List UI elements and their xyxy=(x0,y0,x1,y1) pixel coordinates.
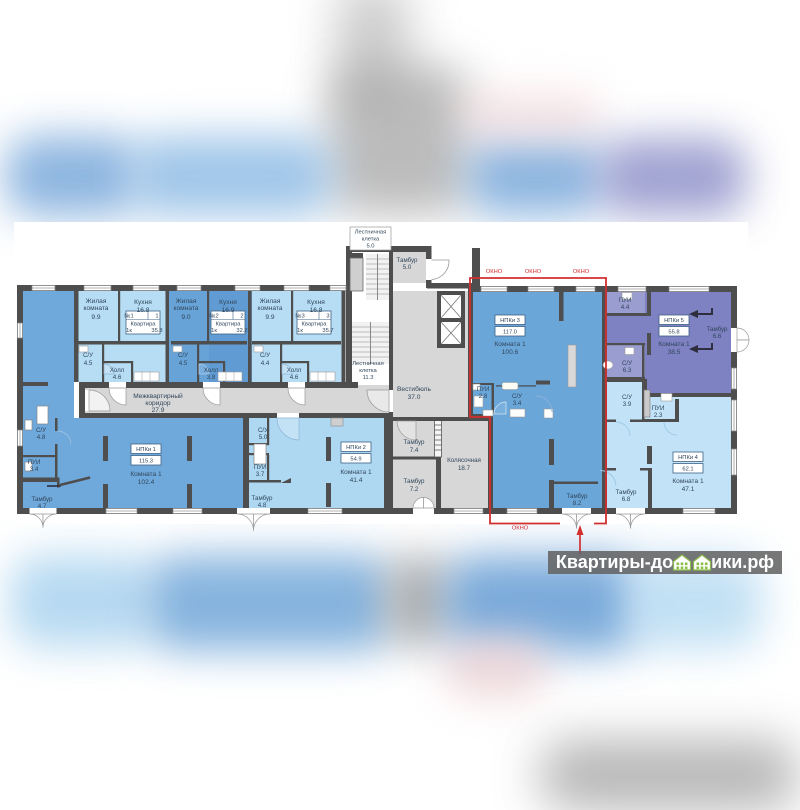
svg-text:Комната 1: Комната 1 xyxy=(658,341,690,348)
svg-text:32.2: 32.2 xyxy=(236,328,247,334)
svg-text:Комната 1: Комната 1 xyxy=(672,478,704,485)
svg-text:Межквартирный: Межквартирный xyxy=(133,392,183,400)
svg-text:ОКНО: ОКНО xyxy=(486,269,503,275)
svg-text:27.9: 27.9 xyxy=(152,407,165,414)
svg-text:2.8: 2.8 xyxy=(479,393,488,400)
svg-text:3.9: 3.9 xyxy=(623,401,632,408)
svg-text:55.8: 55.8 xyxy=(668,330,679,336)
svg-text:16.8: 16.8 xyxy=(310,307,323,314)
svg-text:Лестничная: Лестничная xyxy=(355,230,387,236)
svg-text:НПКи 1: НПКи 1 xyxy=(136,447,156,453)
svg-text:37.0: 37.0 xyxy=(408,394,421,401)
svg-text:С/У: С/У xyxy=(260,352,270,359)
svg-text:6.3: 6.3 xyxy=(623,367,632,374)
svg-text:3: 3 xyxy=(326,314,329,320)
svg-text:НПКи 5: НПКи 5 xyxy=(664,318,684,324)
svg-text:6.8: 6.8 xyxy=(622,496,631,503)
svg-text:16.8: 16.8 xyxy=(137,307,150,314)
svg-text:комната: комната xyxy=(258,305,283,312)
svg-text:Лестничная: Лестничная xyxy=(352,361,384,367)
svg-text:3.7: 3.7 xyxy=(256,471,265,478)
svg-text:ПУИ: ПУИ xyxy=(477,386,490,393)
svg-text:С/У: С/У xyxy=(512,393,522,400)
svg-text:коридор: коридор xyxy=(145,400,170,407)
svg-text:100.6: 100.6 xyxy=(502,349,519,356)
svg-text:62.1: 62.1 xyxy=(682,467,693,473)
svg-text:47.1: 47.1 xyxy=(682,486,695,493)
svg-text:Квартира: Квартира xyxy=(215,322,241,328)
svg-text:1к: 1к xyxy=(211,328,217,334)
svg-text:Вестибюль: Вестибюль xyxy=(397,385,431,393)
svg-text:2: 2 xyxy=(240,314,243,320)
svg-text:ПУИ: ПУИ xyxy=(254,464,267,471)
svg-text:4.6: 4.6 xyxy=(290,374,299,381)
svg-text:Тамбур: Тамбур xyxy=(404,478,426,485)
svg-text:5.0: 5.0 xyxy=(403,264,412,271)
svg-text:Тамбур: Тамбур xyxy=(252,495,274,502)
svg-text:5.0: 5.0 xyxy=(366,244,374,250)
svg-text:54.9: 54.9 xyxy=(350,457,361,463)
svg-text:Жилая: Жилая xyxy=(260,298,281,305)
svg-text:Тамбур: Тамбур xyxy=(616,489,638,496)
svg-text:№2: №2 xyxy=(209,314,218,320)
svg-text:ОКНО: ОКНО xyxy=(525,269,542,275)
svg-text:комната: комната xyxy=(174,305,199,312)
svg-text:Кухня: Кухня xyxy=(134,299,152,306)
svg-text:С/У: С/У xyxy=(178,352,188,359)
svg-text:1: 1 xyxy=(155,314,158,320)
svg-text:4.4: 4.4 xyxy=(261,360,270,367)
svg-text:35.7: 35.7 xyxy=(322,328,333,334)
svg-text:41.4: 41.4 xyxy=(350,477,363,484)
svg-text:клетка: клетка xyxy=(362,237,380,243)
svg-text:С/У: С/У xyxy=(622,360,632,367)
svg-text:НПКи 4: НПКи 4 xyxy=(678,455,699,461)
svg-text:Кухня: Кухня xyxy=(219,299,237,306)
svg-text:4.6: 4.6 xyxy=(113,374,122,381)
svg-text:НПКи 3: НПКи 3 xyxy=(500,318,520,324)
svg-text:102.4: 102.4 xyxy=(138,479,155,486)
svg-text:35.8: 35.8 xyxy=(151,328,162,334)
svg-text:1к: 1к xyxy=(297,328,303,334)
svg-text:4.5: 4.5 xyxy=(179,360,188,367)
svg-text:117.0: 117.0 xyxy=(503,330,517,336)
svg-text:2.3: 2.3 xyxy=(654,412,663,419)
svg-text:9.9: 9.9 xyxy=(265,314,274,321)
svg-text:Квартира: Квартира xyxy=(130,322,156,328)
svg-text:4.8: 4.8 xyxy=(37,434,46,441)
svg-text:Жилая: Жилая xyxy=(176,298,197,305)
svg-text:С/У: С/У xyxy=(622,394,632,401)
svg-text:4.4: 4.4 xyxy=(621,304,630,311)
svg-text:3.4: 3.4 xyxy=(30,466,39,473)
svg-text:ОКНО: ОКНО xyxy=(512,526,529,532)
svg-text:Холл: Холл xyxy=(204,367,219,374)
svg-text:4.5: 4.5 xyxy=(84,360,93,367)
svg-text:Холл: Холл xyxy=(110,367,125,374)
svg-text:5.0: 5.0 xyxy=(259,434,268,441)
svg-text:3.8: 3.8 xyxy=(207,374,216,381)
svg-text:115.3: 115.3 xyxy=(139,459,153,465)
svg-text:Квартира: Квартира xyxy=(301,322,327,328)
svg-text:Комната 1: Комната 1 xyxy=(494,341,526,348)
svg-text:С/У: С/У xyxy=(83,352,93,359)
svg-text:3.4: 3.4 xyxy=(513,400,522,407)
svg-text:Кухня: Кухня xyxy=(307,299,325,306)
svg-text:№1: №1 xyxy=(124,314,133,320)
svg-text:16.9: 16.9 xyxy=(222,307,235,314)
svg-text:9.9: 9.9 xyxy=(91,314,100,321)
svg-text:6.6: 6.6 xyxy=(713,333,722,340)
svg-text:Тамбур: Тамбур xyxy=(567,493,589,500)
svg-text:Холл: Холл xyxy=(287,367,302,374)
svg-text:4.8: 4.8 xyxy=(258,502,267,509)
svg-text:18.7: 18.7 xyxy=(458,465,471,472)
svg-text:ПУИ: ПУИ xyxy=(619,297,632,304)
svg-text:4.7: 4.7 xyxy=(38,503,47,510)
svg-text:клетка: клетка xyxy=(359,368,377,374)
svg-text:ОКНО: ОКНО xyxy=(573,269,590,275)
svg-text:С/У: С/У xyxy=(258,427,268,434)
svg-text:1к: 1к xyxy=(126,328,132,334)
svg-text:Жилая: Жилая xyxy=(86,298,107,305)
svg-text:Комната 1: Комната 1 xyxy=(130,471,162,478)
svg-text:№3: №3 xyxy=(295,314,304,320)
svg-text:9.0: 9.0 xyxy=(181,314,190,321)
svg-text:Колясочная: Колясочная xyxy=(447,457,481,464)
svg-text:11.3: 11.3 xyxy=(363,375,374,381)
svg-text:Комната 1: Комната 1 xyxy=(340,469,372,476)
svg-text:Тамбур: Тамбур xyxy=(404,439,426,446)
svg-text:ПУИ: ПУИ xyxy=(652,405,665,412)
svg-text:ПУИ: ПУИ xyxy=(28,459,41,466)
svg-text:С/У: С/У xyxy=(36,427,46,434)
svg-text:38.5: 38.5 xyxy=(668,349,681,356)
svg-text:Тамбур: Тамбур xyxy=(397,257,419,264)
svg-text:Тамбур: Тамбур xyxy=(707,326,729,333)
svg-text:НПКи 2: НПКи 2 xyxy=(346,445,366,451)
svg-text:8.2: 8.2 xyxy=(573,500,582,507)
svg-text:7.4: 7.4 xyxy=(410,447,419,454)
svg-text:комната: комната xyxy=(84,305,109,312)
svg-text:Тамбур: Тамбур xyxy=(32,496,54,503)
svg-text:7.2: 7.2 xyxy=(410,486,419,493)
